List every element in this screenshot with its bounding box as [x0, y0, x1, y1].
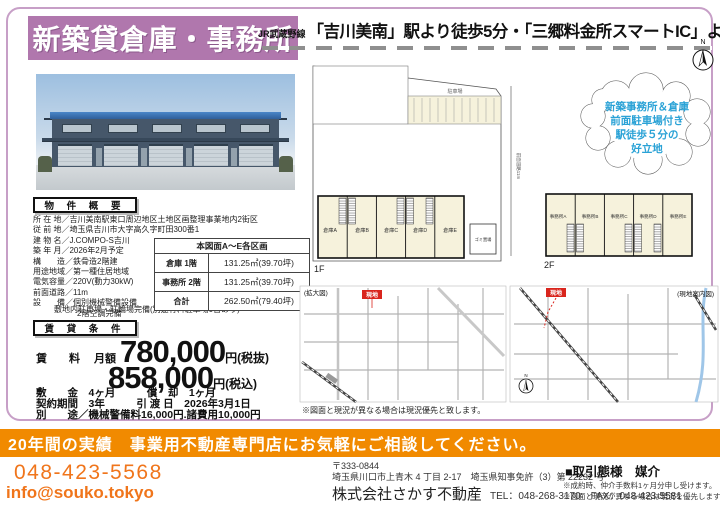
- map-enlarged: 現地 (拡大図): [300, 286, 506, 402]
- footer-note-1: ※成約時、仲介手数料1ヶ月分申し受けます。: [563, 480, 716, 491]
- route-line-name: JR武蔵野線: [258, 27, 306, 40]
- unit-label: 倉庫C: [384, 226, 398, 234]
- photo-window: [196, 124, 226, 133]
- floor-label-2f: 2F: [544, 260, 555, 270]
- area-table-header: 本図面A〜E各区画: [155, 239, 310, 254]
- photo-canopy: [42, 138, 289, 141]
- photo-roof: [50, 112, 281, 119]
- unit-label: 倉庫D: [413, 226, 427, 234]
- photo-entry-door: [141, 148, 147, 166]
- photo-entry-door: [186, 148, 192, 166]
- area-row-value: 262.50㎡(79.40坪): [209, 292, 310, 311]
- company-name: 株式会社さかす不動産: [332, 483, 482, 504]
- map-guide: 現地 N (現地案内図): [510, 286, 718, 402]
- building-photo: [36, 74, 295, 190]
- unit-label: 事務所E: [670, 213, 687, 220]
- photo-ground: [36, 165, 295, 190]
- railway-dash-line: [262, 46, 712, 50]
- photo-window: [240, 124, 270, 133]
- photo-entry-door: [231, 148, 237, 166]
- footer-note-2: ※図面と現況が異なる場合は現況を優先します。: [563, 491, 720, 502]
- detail-line: 従 前 地／埼玉県吉川市大字高久字町田300番1: [33, 225, 301, 235]
- compass-n-label: N: [700, 39, 705, 46]
- table-row: 倉庫 1階 131.25㎡(39.70坪): [155, 254, 310, 273]
- map-compass-n: N: [524, 373, 527, 378]
- photo-window: [152, 124, 182, 133]
- bubble-line: 新築事務所＆倉庫: [605, 100, 689, 113]
- area-row-value: 131.25㎡(39.70坪): [209, 273, 310, 292]
- area-table: 本図面A〜E各区画 倉庫 1階 131.25㎡(39.70坪) 事務所 2階 1…: [154, 238, 310, 311]
- location-maps: 現地 (拡大図) 現地 N (現地案内図): [298, 284, 720, 406]
- front-road-label: 前面道路11m: [515, 153, 522, 180]
- route-access-text: 「吉川美南」駅より徒歩5分・「三郷料金所スマートIC」より約2.6km: [308, 18, 720, 42]
- unit-label: 事務所C: [610, 213, 628, 220]
- photo-window: [108, 124, 138, 133]
- floor-label-1f: 1F: [314, 264, 325, 274]
- map-label-guide: (現地案内図): [677, 289, 714, 298]
- unit-label: 事務所B: [582, 213, 599, 220]
- area-row-value: 131.25㎡(39.70坪): [209, 254, 310, 273]
- unit-label: 事務所D: [639, 213, 657, 220]
- unit-label: 倉庫E: [443, 226, 457, 234]
- photo-hedge: [279, 156, 293, 172]
- feature-bubble: 新築事務所＆倉庫 前面駐車場付き 駅徒歩５分の 好立地: [576, 68, 718, 178]
- photo-shutter-door: [194, 144, 228, 166]
- rent-unit-incl: 円(税込): [213, 375, 257, 392]
- area-row-label: 倉庫 1階: [155, 254, 209, 273]
- bubble-line: 好立地: [630, 142, 663, 155]
- trash-shed-label: ゴミ置場: [475, 236, 493, 243]
- neighbor-parcel: [313, 66, 408, 124]
- area-row-label: 事務所 2階: [155, 273, 209, 292]
- bubble-line: 前面駐車場付き: [610, 114, 684, 127]
- map-disclaimer: ※図面と現況が異なる場合は現況優先と致します。: [302, 405, 485, 416]
- map-label-enlarged: (拡大図): [304, 288, 328, 297]
- footer-banner: 20年間の実績 事業用不動産専門店にお気軽にご相談してください。: [0, 429, 720, 457]
- rent-label: 賃 料: [36, 350, 80, 366]
- table-row: 合計 262.50㎡(79.40坪): [155, 292, 310, 311]
- parking-label: 駐車場: [447, 88, 462, 95]
- photo-entry-door: [96, 148, 102, 166]
- photo-hedge: [38, 156, 52, 172]
- detail-line: 所 在 地／吉川美南駅東口周辺地区土地区画整理事業地内2街区: [33, 215, 301, 225]
- area-row-label: 合計: [155, 292, 209, 311]
- photo-shutter-door: [104, 144, 138, 166]
- email-address[interactable]: info@souko.tokyo: [6, 483, 154, 503]
- site-badge-label: 現地: [366, 291, 378, 299]
- route-header: JR武蔵野線 「吉川美南」駅より徒歩5分・「三郷料金所スマートIC」より約2.6…: [258, 18, 716, 42]
- extra-cost-line: 別 途／機械警備料16,000円.諸費用10,000円: [36, 407, 261, 422]
- unit-label: 倉庫B: [355, 226, 369, 234]
- unit-label: 事務所A: [550, 213, 568, 220]
- unit-label: 倉庫A: [323, 226, 337, 234]
- photo-shutter-door: [149, 144, 183, 166]
- phone-number[interactable]: 048-423-5568: [14, 461, 163, 485]
- section-header-property: 物 件 概 要: [33, 197, 137, 213]
- photo-shutter-door: [58, 144, 92, 166]
- photo-window: [62, 124, 92, 133]
- site-badge-label: 現地: [550, 289, 562, 297]
- photo-shutter-door: [239, 144, 273, 166]
- bubble-line: 駅徒歩５分の: [616, 128, 679, 141]
- table-row: 事務所 2階 131.25㎡(39.70坪): [155, 273, 310, 292]
- deal-type: ■取引態様 媒介: [565, 461, 660, 480]
- site-plan-2f: 事務所A 事務所B 事務所C 事務所D 事務所E 2F: [540, 190, 718, 270]
